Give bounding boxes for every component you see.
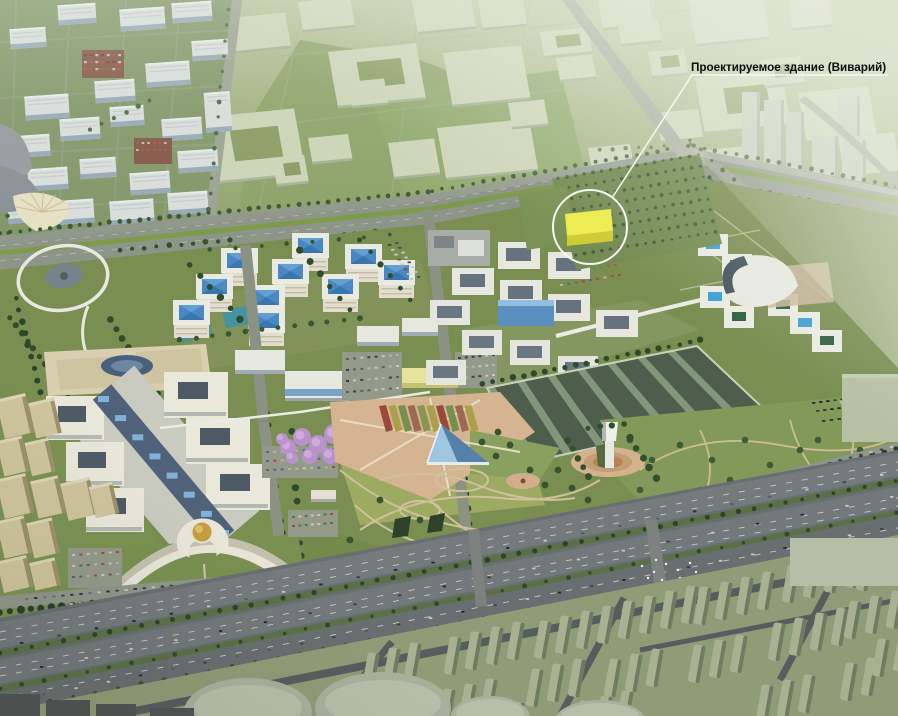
svg-text:Проектируемое здание (Виварий): Проектируемое здание (Виварий) <box>691 61 886 74</box>
